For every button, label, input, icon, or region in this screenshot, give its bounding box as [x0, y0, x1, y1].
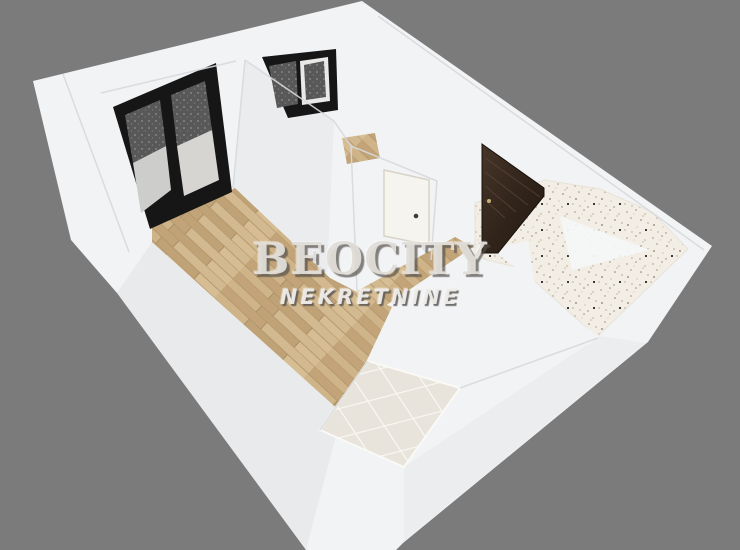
interior-door-panel [384, 170, 429, 245]
entrance-door-handle [487, 199, 491, 203]
interior-door-handle [414, 214, 419, 219]
apartment-3d-floorplan: BEOCITY NEKRETNINE [0, 0, 740, 550]
interior-door [384, 170, 429, 245]
floorplan-render [0, 0, 740, 550]
second-room-window-glass-right [304, 61, 326, 100]
